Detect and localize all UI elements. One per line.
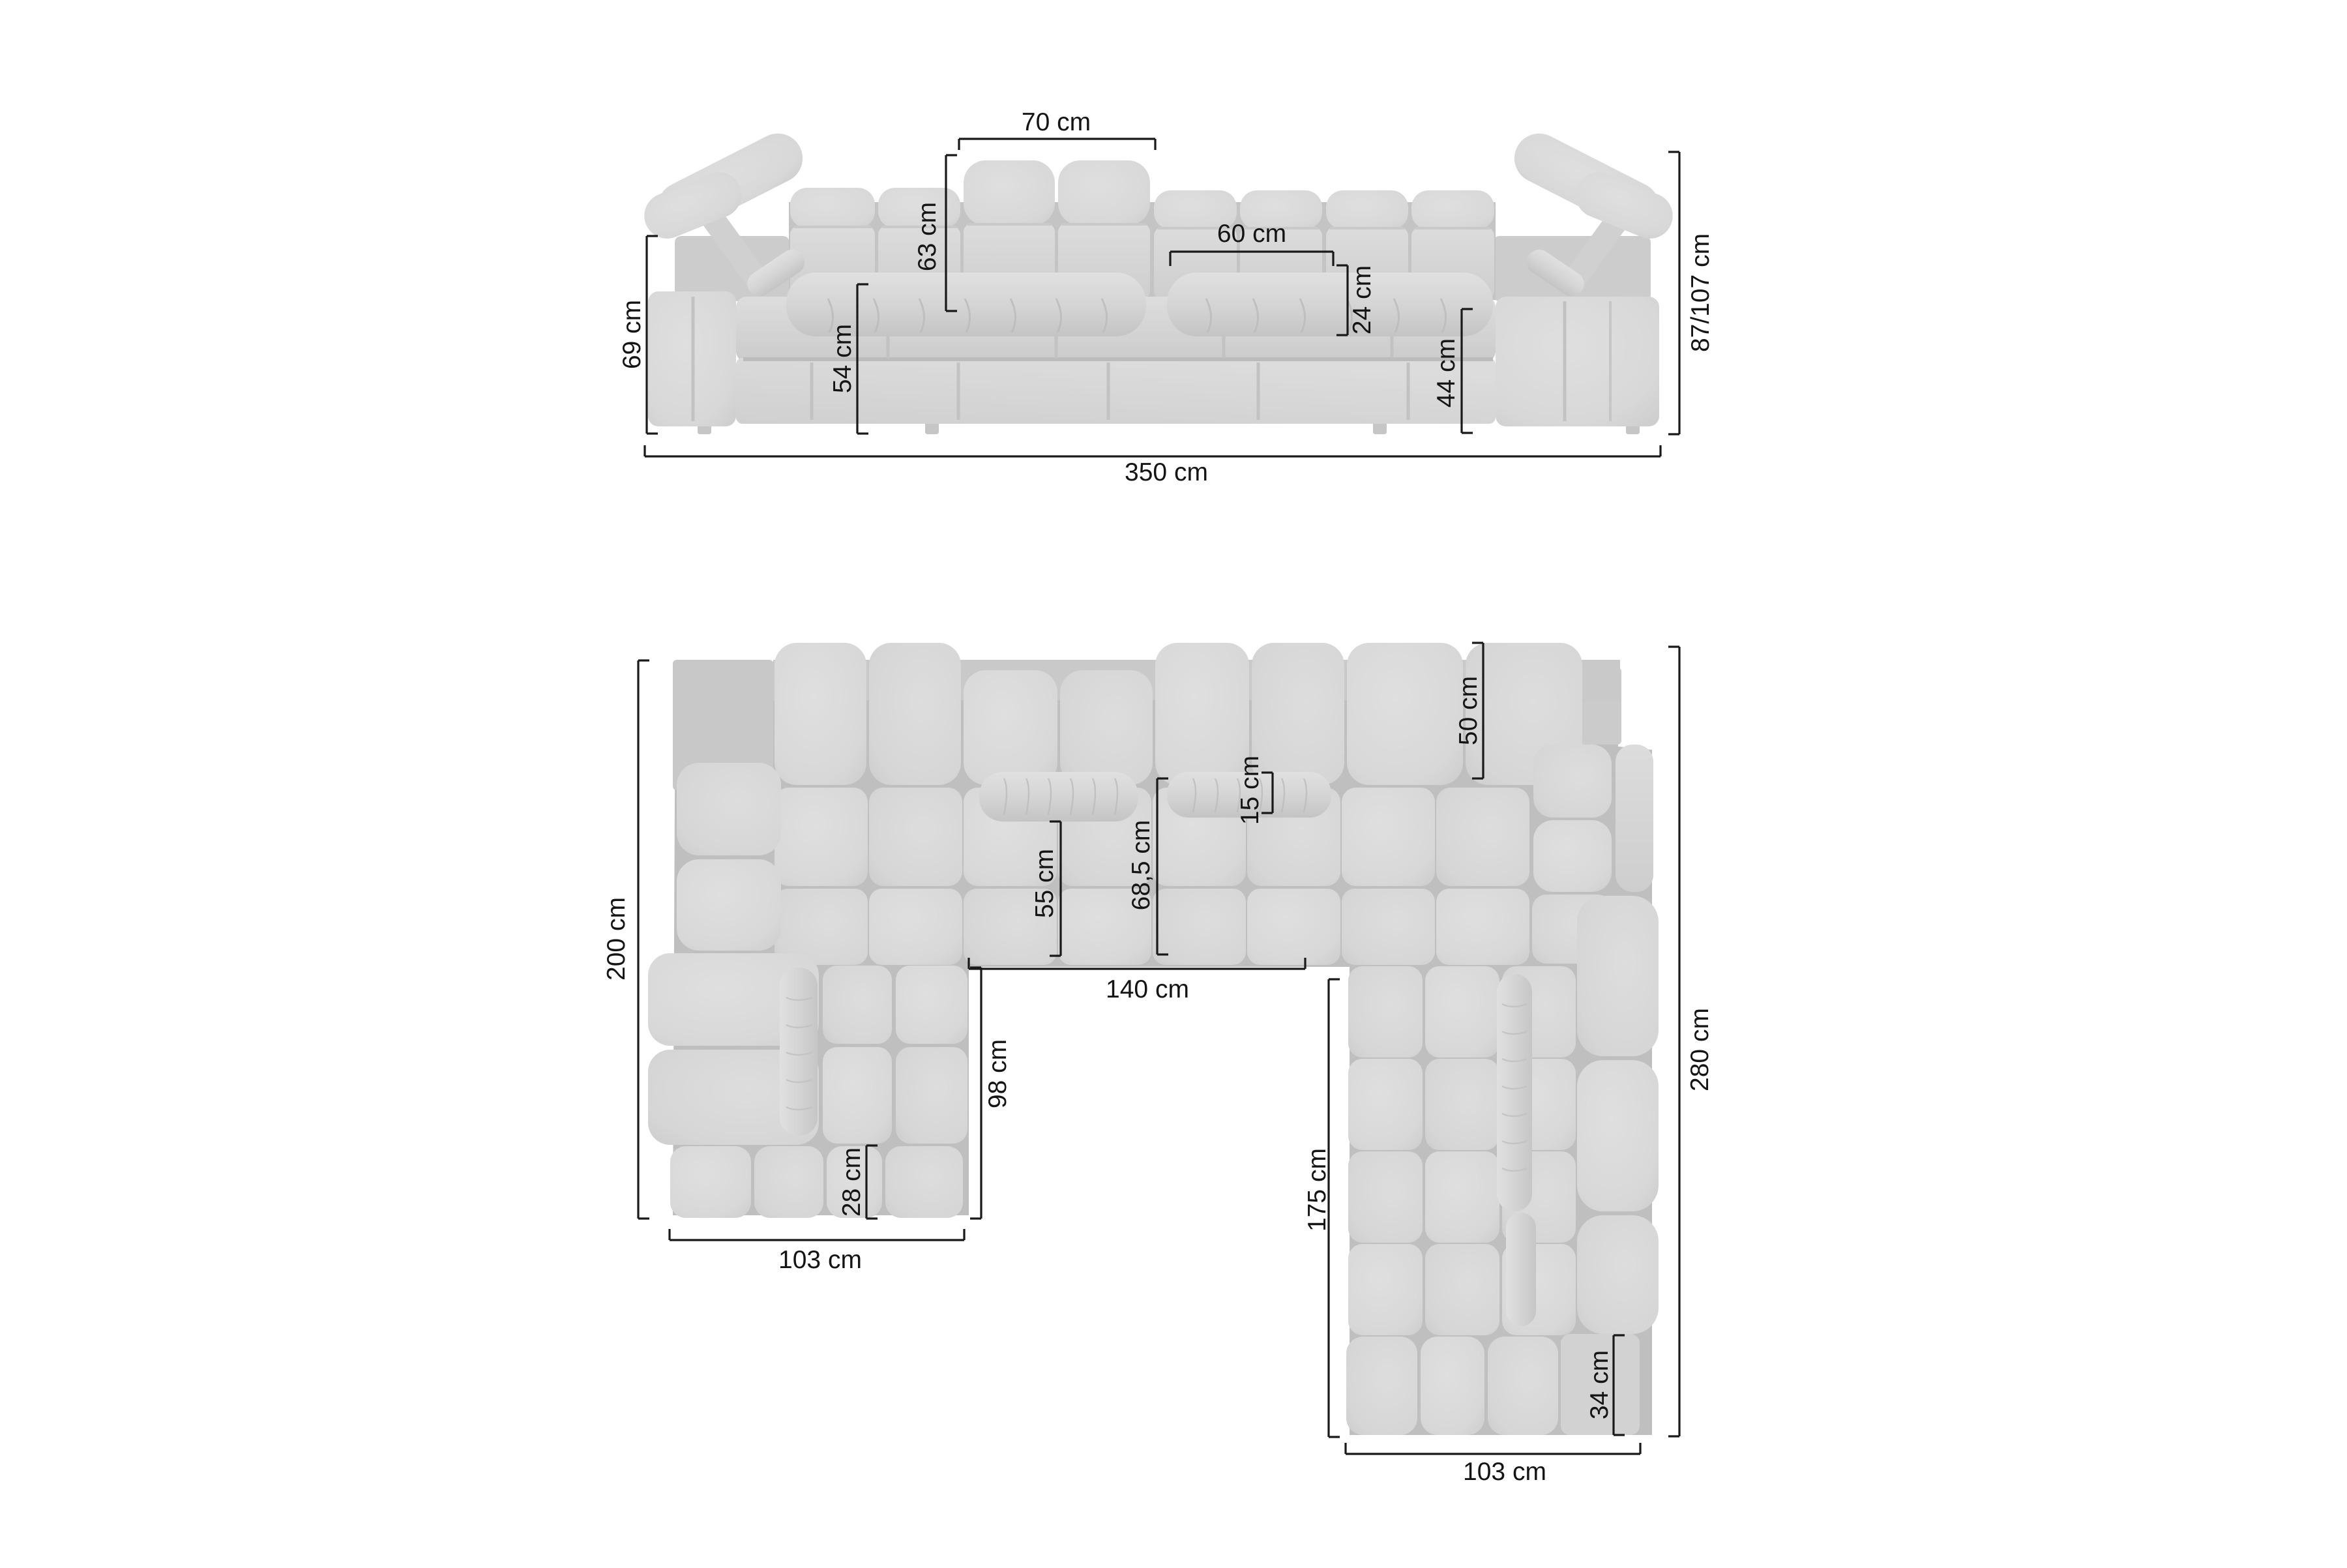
svg-text:70 cm: 70 cm <box>1022 108 1091 136</box>
svg-text:140 cm: 140 cm <box>1106 975 1189 1003</box>
svg-text:55 cm: 55 cm <box>1031 849 1059 918</box>
svg-text:15 cm: 15 cm <box>1236 756 1264 825</box>
svg-text:175 cm: 175 cm <box>1303 1148 1331 1232</box>
svg-text:87/107 cm: 87/107 cm <box>1687 233 1715 352</box>
svg-text:34 cm: 34 cm <box>1586 1350 1614 1419</box>
svg-text:280 cm: 280 cm <box>1686 1008 1714 1091</box>
svg-text:98 cm: 98 cm <box>984 1039 1012 1108</box>
svg-text:69 cm: 69 cm <box>618 300 646 369</box>
svg-text:350 cm: 350 cm <box>1125 458 1208 486</box>
svg-text:50 cm: 50 cm <box>1454 676 1483 745</box>
svg-text:54 cm: 54 cm <box>829 324 857 393</box>
svg-text:200 cm: 200 cm <box>602 897 630 981</box>
svg-text:103 cm: 103 cm <box>1463 1458 1546 1486</box>
svg-text:103 cm: 103 cm <box>778 1246 862 1274</box>
svg-text:44 cm: 44 cm <box>1432 338 1460 407</box>
svg-text:60 cm: 60 cm <box>1217 220 1286 248</box>
svg-text:68,5 cm: 68,5 cm <box>1127 820 1155 911</box>
svg-text:24 cm: 24 cm <box>1348 265 1376 334</box>
svg-text:63 cm: 63 cm <box>913 202 941 271</box>
svg-text:28 cm: 28 cm <box>838 1147 866 1217</box>
